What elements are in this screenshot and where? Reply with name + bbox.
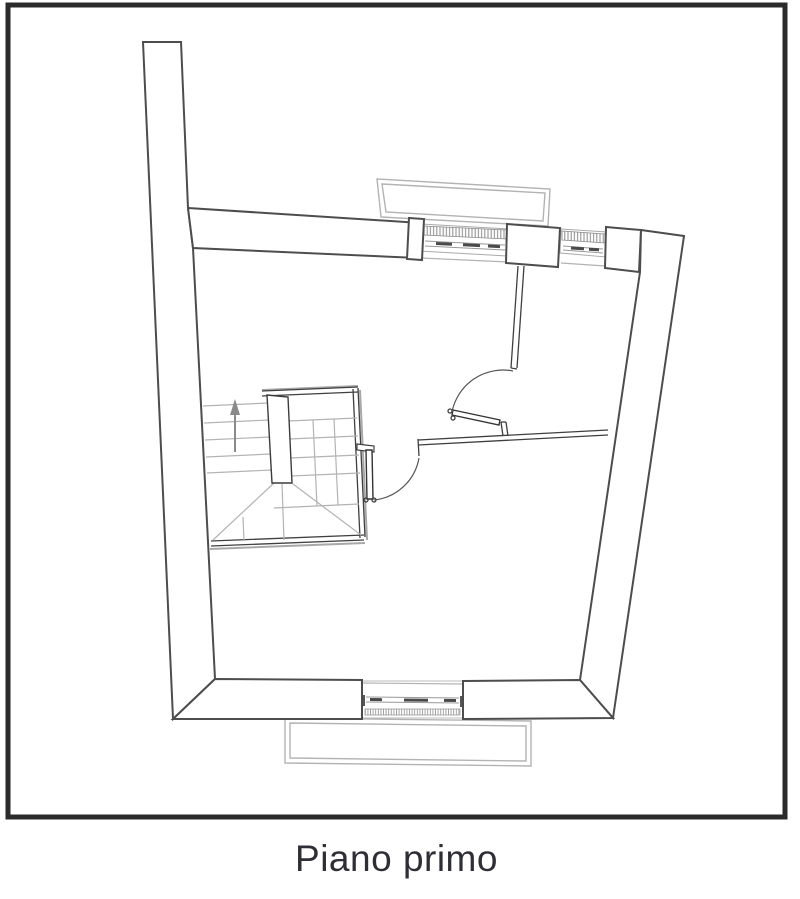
bottom-window — [362, 681, 463, 718]
top-window-left — [419, 224, 509, 262]
staircase — [203, 386, 367, 549]
window-jamb — [407, 218, 424, 260]
door-leaf — [366, 450, 373, 499]
stair-up-arrow-icon — [230, 399, 240, 452]
window-jamb — [605, 227, 641, 272]
top-balcony — [377, 179, 550, 226]
floor-plan-page: Piano primo — [0, 0, 800, 899]
room-door — [448, 370, 513, 425]
floor-label: Piano primo — [0, 838, 793, 880]
floor-plan — [0, 0, 800, 830]
left-wall — [143, 42, 215, 719]
exterior-walls — [143, 42, 684, 719]
door-swing-arc — [374, 458, 419, 500]
pillar — [506, 224, 560, 267]
top-wall — [188, 208, 421, 258]
bottom-balcony — [285, 718, 531, 766]
right-wall — [580, 230, 684, 718]
door-leaf — [452, 410, 500, 425]
window-hatch — [365, 709, 460, 715]
stair-divider-wall — [267, 395, 292, 483]
interior-partition-walls — [418, 266, 608, 456]
door-swing-arc — [452, 370, 513, 412]
stair-door — [357, 444, 419, 502]
top-window-right — [560, 229, 607, 266]
